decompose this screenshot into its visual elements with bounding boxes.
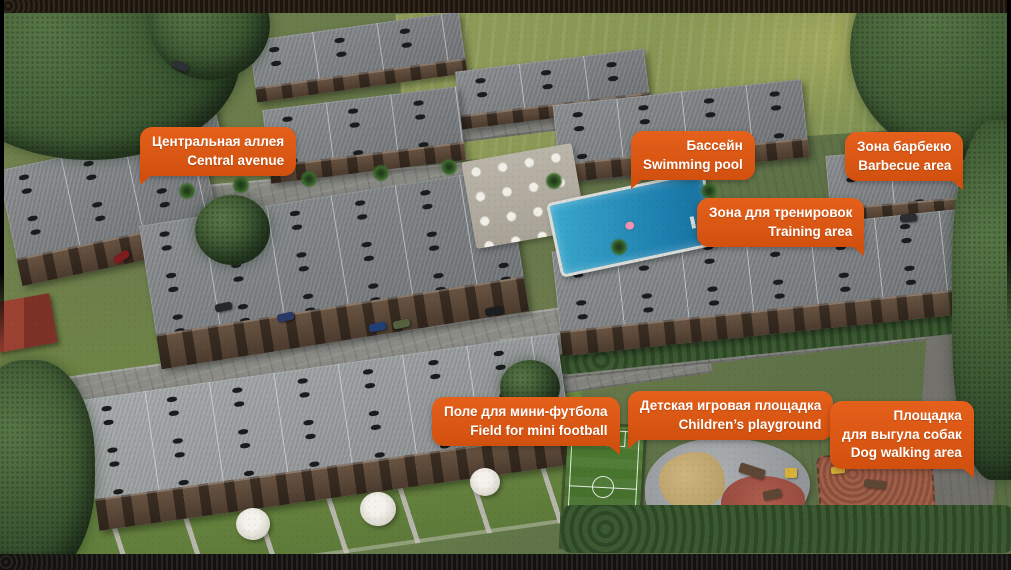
dog-agility-equipment [864,479,887,489]
label-line-ru: Бассейн [643,137,743,156]
palm-tree [372,164,390,182]
label-barbecue-area: Зона барбекю Barbecue area [845,132,963,181]
label-training-area: Зона для тренировок Training area [697,198,864,247]
label-line-ru: Детская игровая площадка [640,397,821,416]
label-line-en: Field for mini football [444,422,608,441]
label-line-en: Dog walking area [842,444,962,463]
tree-cluster [195,195,270,265]
label-line-ru: Зона для тренировок [709,204,852,223]
masterplan-render: Центральная аллея Central avenue Бассейн… [0,0,1011,570]
label-children-playground: Детская игровая площадка Children’s play… [628,391,833,440]
label-line-en: Central avenue [152,152,284,171]
label-line-en: Swimming pool [643,156,743,175]
label-swimming-pool: Бассейн Swimming pool [631,131,755,180]
right-edge-bar [1007,0,1011,330]
left-edge-bar [0,0,4,360]
label-line-ru: Площадка [842,407,962,426]
label-line-ru: Поле для мини-футбола [444,403,608,422]
palm-tree [610,238,628,256]
label-line-ru: для выгула собак [842,426,962,445]
play-structure [785,468,797,478]
hedge-bottom [560,505,1011,553]
bottom-dark-band [0,554,1011,570]
label-mini-football-field: Поле для мини-футбола Field for mini foo… [432,397,620,446]
car [900,213,918,222]
garden-umbrella [470,468,500,496]
label-line-en: Barbecue area [857,157,951,176]
palm-tree [178,182,196,200]
palm-tree [545,172,563,190]
palm-tree [232,176,250,194]
palm-tree [440,158,458,176]
garden-umbrella [236,508,270,540]
label-line-ru: Центральная аллея [152,133,284,152]
top-dark-band [0,0,1011,13]
palm-tree [300,170,318,188]
playground-sand [659,452,725,510]
label-dog-walking-area: Площадка для выгула собак Dog walking ar… [830,401,974,469]
label-line-en: Training area [709,223,852,242]
garden-umbrella [360,492,396,526]
neighbour-house-red-roof [0,293,58,353]
label-central-avenue: Центральная аллея Central avenue [140,127,296,176]
label-line-en: Children’s playground [640,416,821,435]
label-line-ru: Зона барбекю [857,138,951,157]
